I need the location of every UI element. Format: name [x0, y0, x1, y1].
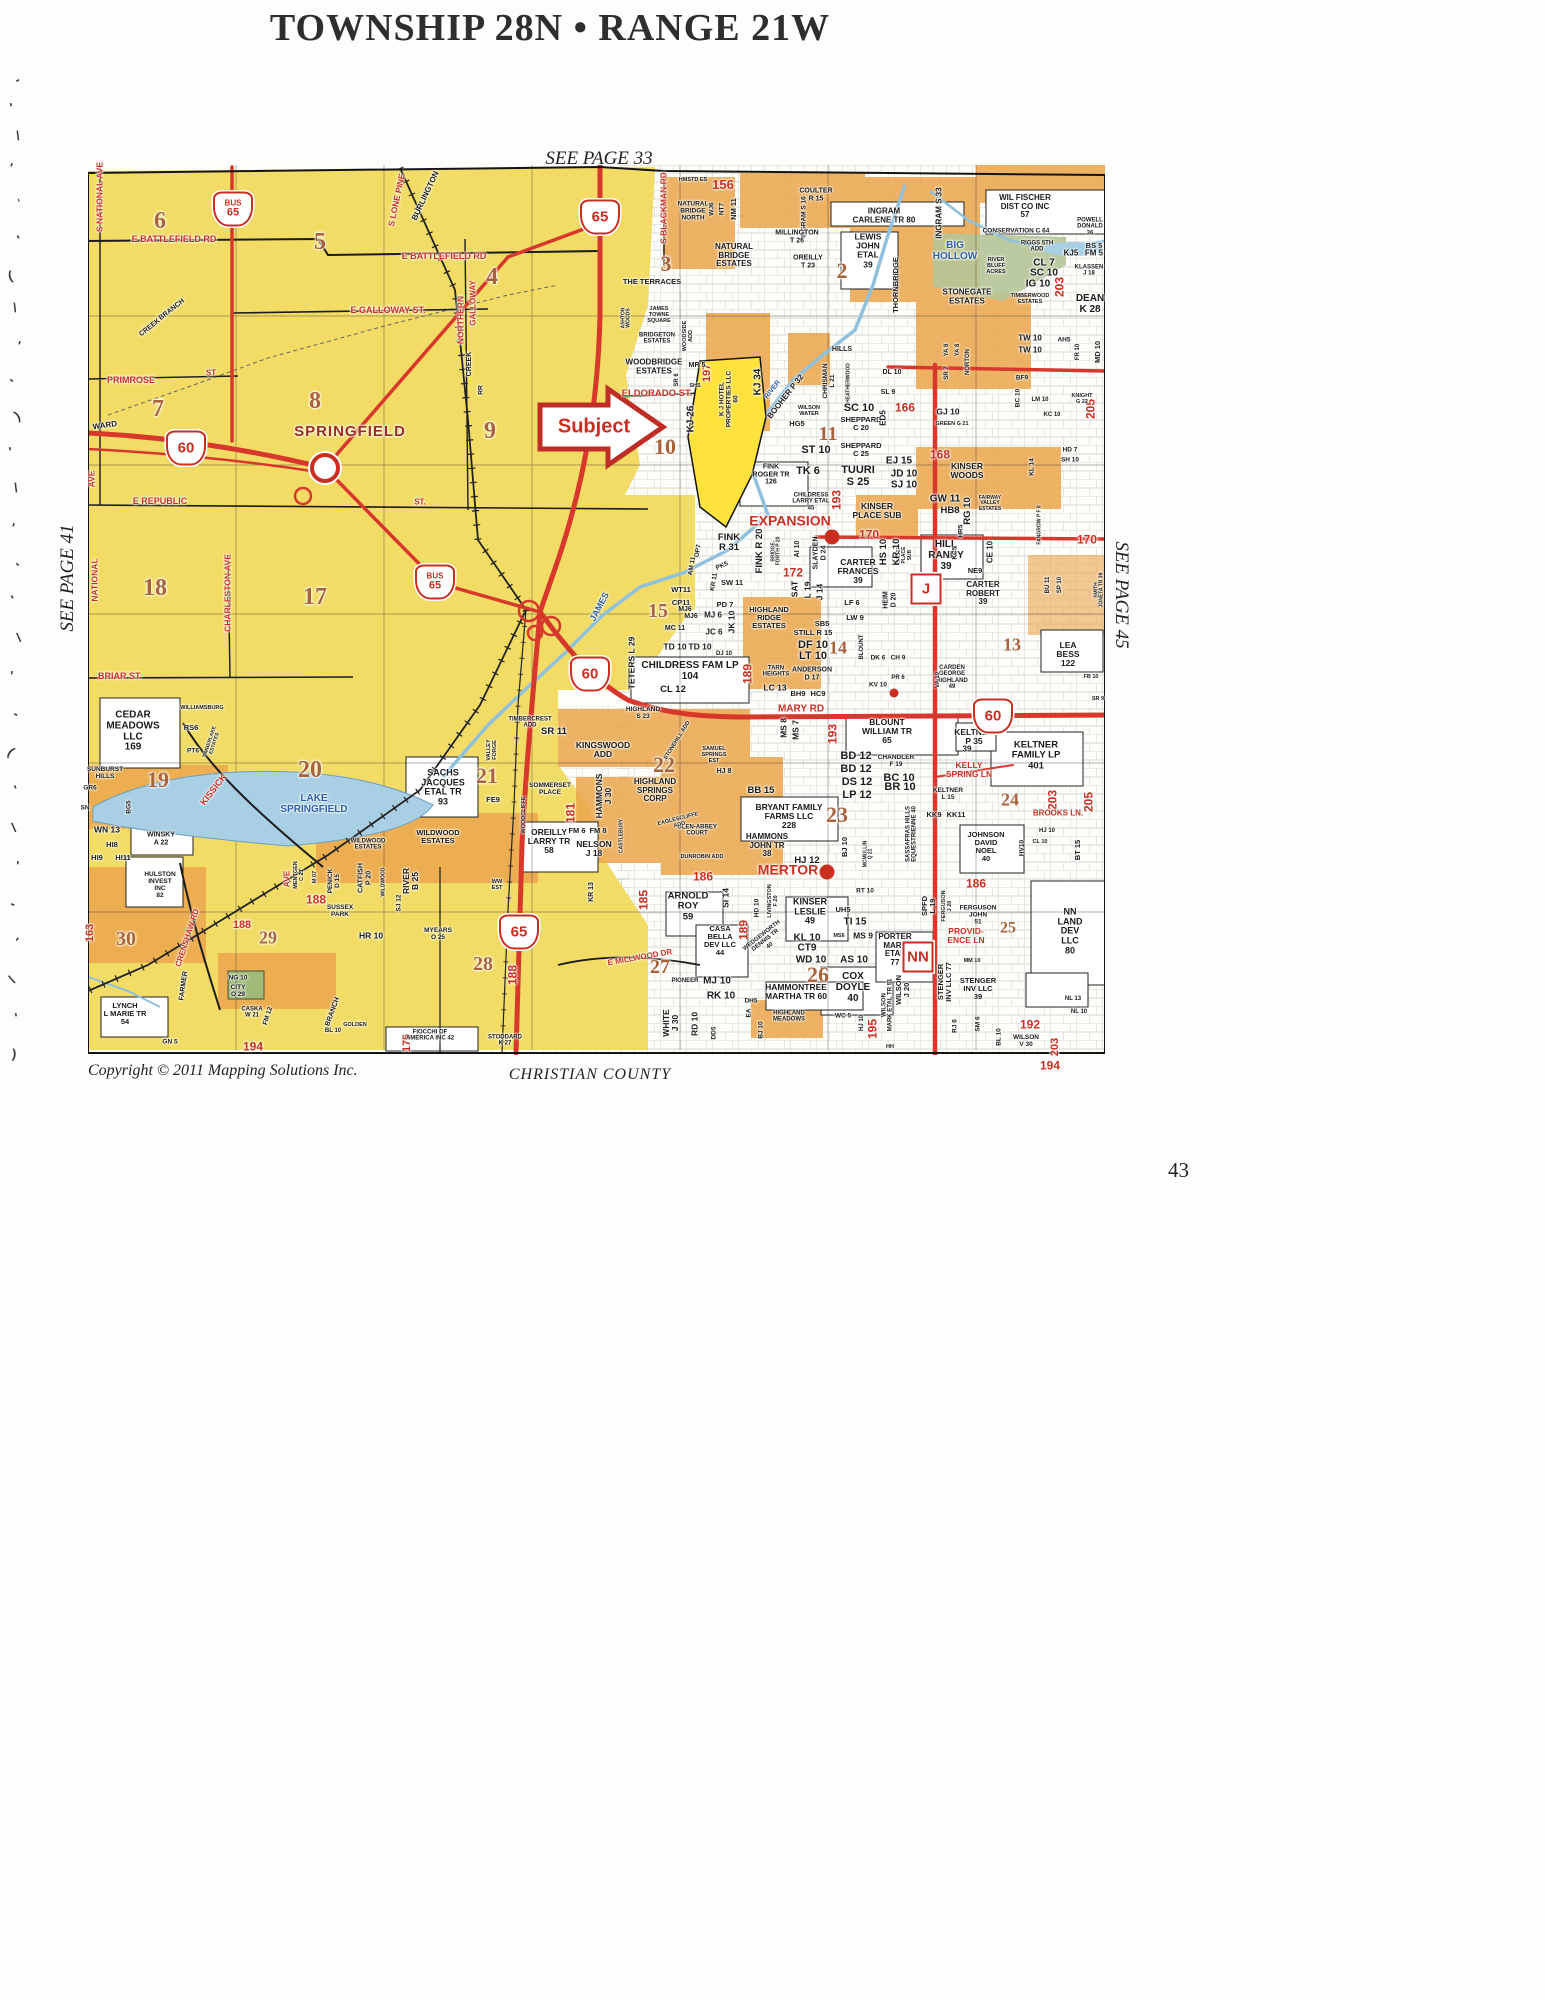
page-number: 43 — [1168, 1158, 1189, 1183]
page-title: TOWNSHIP 28N • RANGE 21W — [150, 6, 950, 50]
see-page-45-link[interactable]: SEE PAGE 45 — [1110, 541, 1132, 648]
copyright-note: Copyright © 2011 Mapping Solutions Inc. — [88, 1062, 358, 1080]
scan-artifact: ' — [8, 592, 18, 607]
plat-map-page: TOWNSHIP 28N • RANGE 21W SEE PAGE 33 SEE… — [0, 0, 1545, 2000]
scan-artifact: \ — [15, 630, 22, 645]
scan-artifact: ) — [12, 408, 23, 423]
plat-map-canvas[interactable] — [88, 165, 1105, 1055]
scan-artifact: ` — [10, 196, 23, 210]
scan-artifact: - — [12, 556, 25, 570]
scan-artifact: ' — [8, 100, 14, 115]
scan-artifact: ' — [9, 668, 13, 683]
scan-artifact: ' — [13, 1010, 19, 1025]
scan-artifact: - — [11, 706, 20, 722]
scan-artifact: ( — [6, 268, 14, 284]
scan-artifact: ) — [11, 1046, 16, 1061]
scan-artifact: ' — [14, 232, 24, 247]
map-label: 194 — [1040, 1060, 1060, 1073]
subject-arrow-label: Subject — [558, 416, 630, 439]
scan-artifact: ' — [8, 520, 16, 535]
scan-artifact: ' — [15, 858, 19, 873]
scan-artifact: \ — [15, 128, 20, 143]
scan-artifact: - — [6, 372, 19, 386]
scan-artifact: - — [8, 896, 17, 912]
scan-artifact: \ — [13, 480, 18, 495]
scan-artifact: \ — [6, 972, 17, 987]
county-label: CHRISTIAN COUNTY — [509, 1066, 671, 1084]
scan-artifact: - — [12, 72, 23, 87]
scan-artifact: ' — [6, 160, 14, 175]
scan-artifact: ( — [5, 744, 18, 758]
scan-artifact: \ — [10, 820, 17, 835]
scan-artifact: ' — [7, 444, 13, 459]
see-page-41-link[interactable]: SEE PAGE 41 — [57, 524, 79, 631]
scan-artifact: ' — [11, 782, 21, 797]
scan-artifact: ' — [14, 338, 22, 353]
scan-artifact: ' — [10, 935, 22, 949]
scan-artifact: \ — [12, 300, 17, 315]
